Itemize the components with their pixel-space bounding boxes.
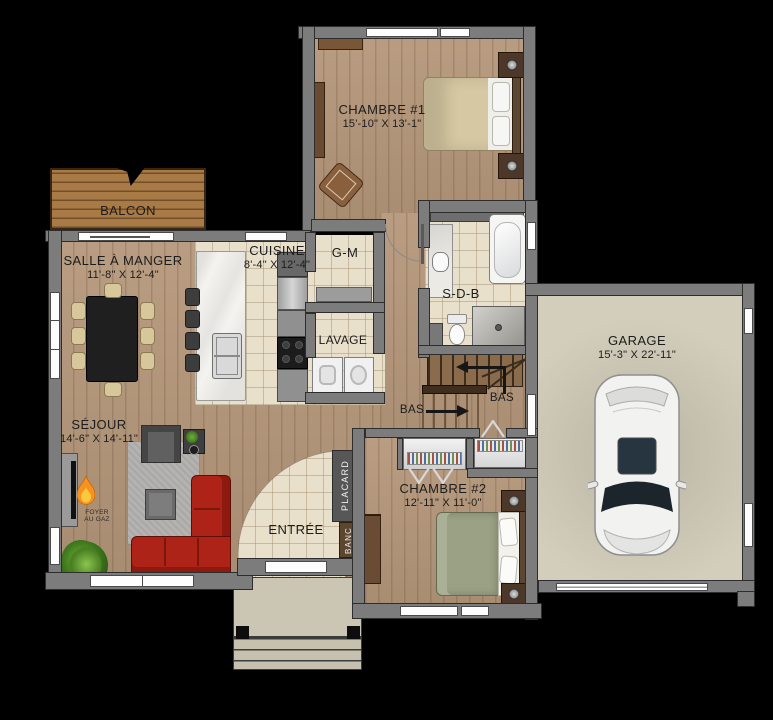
window: [142, 575, 194, 587]
stairs-arrow-1-vertical: [503, 366, 506, 394]
closet-door-swing-icon: [481, 420, 505, 437]
front-door: [265, 561, 327, 573]
bar-stool-icon: [185, 288, 200, 306]
wall-segment: [418, 200, 538, 213]
bed1-headboard: [512, 72, 521, 156]
wall-segment: [365, 428, 480, 438]
bed2-pillow: [499, 555, 518, 584]
bed1-pillow-bottom: [492, 116, 510, 146]
foyer-line2: AU GAZ: [84, 516, 109, 523]
room-name: LAVAGE: [319, 333, 368, 347]
room-dims: 14'-6" X 14'-11": [60, 433, 138, 446]
bath-cabinet: [429, 323, 443, 347]
porch-post-right: [347, 626, 360, 639]
stove-burner: [282, 341, 290, 349]
window: [50, 292, 60, 321]
media-console: [141, 425, 181, 463]
dining-chair-icon: [104, 283, 122, 298]
wall-segment: [311, 219, 386, 232]
stair-railing: [422, 385, 487, 394]
garage-house-door: [527, 394, 536, 436]
room-name: S-D-B: [442, 286, 479, 302]
sofa-cushion-line: [197, 538, 199, 566]
stairs-arrow-2-line: [426, 410, 458, 413]
stairs-arrow-1-horizontal: [467, 366, 506, 369]
room-dims: 15'-3" X 22'-11": [598, 349, 676, 362]
wall-segment: [523, 26, 536, 213]
room-label-salle-a-manger: SALLE À MANGER 11'-8" X 12'-4": [63, 253, 182, 282]
room-name: GARAGE: [598, 333, 676, 349]
window: [245, 232, 287, 241]
bed2-blanket: [436, 512, 502, 596]
bathtub-basin: [494, 222, 521, 278]
stove-burner: [282, 355, 290, 363]
small-plant-icon: [186, 431, 198, 443]
room-name: CUISINE: [244, 243, 310, 259]
front-steps: [233, 637, 362, 670]
room-label-lavage: LAVAGE: [319, 333, 368, 347]
window: [440, 28, 470, 37]
lamp-icon: [506, 161, 517, 172]
wall-segment: [373, 232, 385, 354]
dining-chair-icon: [71, 302, 86, 320]
stove-icon: [277, 337, 308, 369]
dining-chair-icon: [140, 327, 155, 345]
door-leaf: [421, 224, 424, 264]
room-label-garage: GARAGE 15'-3" X 22'-11": [598, 333, 676, 362]
window: [50, 349, 60, 379]
dryer-door: [350, 365, 367, 385]
bar-stool-icon: [185, 310, 200, 328]
wall-segment: [525, 283, 755, 296]
room-name: SALLE À MANGER: [63, 253, 182, 269]
kitchen-counter: [277, 369, 308, 402]
shower-drain: [495, 324, 502, 331]
wall-segment: [466, 438, 474, 470]
bed2-pillow: [499, 517, 519, 547]
kitchen-counter: [277, 310, 308, 337]
nightstand-icon: [498, 153, 525, 179]
foyer-label: FOYER AU GAZ: [84, 509, 109, 524]
room-label-sdb: S-D-B: [442, 286, 479, 302]
stairs-down-label-1: BAS: [490, 392, 514, 406]
coffee-table-icon: [145, 489, 176, 520]
dining-chair-icon: [140, 352, 155, 370]
room-name: SÉJOUR: [60, 417, 138, 433]
room-name: CHAMBRE #2: [399, 481, 486, 497]
window: [400, 606, 458, 616]
dining-table-icon: [86, 296, 138, 382]
balcon-deck: [50, 168, 206, 230]
foyer-line1: FOYER: [85, 509, 108, 516]
dining-chair-icon: [71, 327, 86, 345]
lamp-icon: [509, 496, 520, 507]
fridge-icon: [277, 277, 308, 310]
pantry-shelf: [316, 287, 372, 302]
room-name: G-M: [332, 245, 358, 261]
sofa-cushion-line: [194, 508, 220, 510]
window: [744, 308, 753, 334]
sofa-cushion-line: [164, 538, 166, 566]
room-dims: 12'-11" X 11'-0": [399, 497, 486, 510]
room-label-entree: ENTRÉE: [268, 522, 323, 538]
car-icon: [588, 372, 686, 558]
nightstand-icon: [501, 490, 527, 512]
closet-hall-hangers: [477, 440, 523, 452]
fireplace-flame-icon: [77, 476, 95, 505]
stairs-arrow-2-head: [457, 405, 469, 417]
dining-chair-icon: [104, 382, 122, 397]
washer-door: [319, 365, 336, 385]
garage-side-door: [744, 503, 753, 547]
stairs-down-label-2: BAS: [400, 404, 424, 418]
decor-bowl-icon: [189, 445, 199, 455]
lamp-icon: [509, 589, 520, 600]
stairs-arrow-1-head: [456, 361, 468, 373]
closet-chambre2-hangers: [407, 452, 462, 465]
room-label-gm: G-M: [332, 245, 358, 261]
room-label-chambre1: CHAMBRE #1 15'-10" X 13'-1": [338, 102, 425, 131]
stove-burner: [295, 341, 303, 349]
room-label-chambre2: CHAMBRE #2 12'-11" X 11'-0": [399, 481, 486, 510]
wall-segment: [737, 591, 755, 607]
window: [90, 575, 143, 587]
wall-segment: [305, 392, 385, 404]
bar-stool-icon: [185, 354, 200, 372]
sofa-seat: [131, 536, 231, 577]
room-dims: 15'-10" X 13'-1": [338, 118, 425, 131]
floor-plan: FOYER AU GAZ BAS BAS PLACARD BANC: [0, 0, 773, 720]
porch-post-left: [236, 626, 249, 639]
room-label-sejour: SÉJOUR 14'-6" X 14'-11": [60, 417, 138, 446]
wall-segment: [305, 313, 316, 358]
patio-door-slider-line: [90, 236, 150, 238]
room-name: BALCON: [100, 203, 156, 219]
bed1-pillow-top: [492, 82, 510, 112]
wall-segment: [352, 428, 365, 619]
room-label-balcon: BALCON: [100, 203, 156, 219]
wall-segment: [397, 438, 403, 470]
window: [50, 320, 60, 350]
window: [366, 28, 438, 37]
room-label-cuisine: CUISINE 8'-4" X 12'-4": [244, 243, 310, 272]
room-dims: 11'-8" X 12'-4": [63, 269, 182, 282]
toilet-bowl-icon: [449, 324, 465, 345]
nightstand-icon: [498, 52, 525, 78]
wall-segment: [305, 302, 385, 313]
window: [461, 606, 489, 616]
room-name: CHAMBRE #1: [338, 102, 425, 118]
bathroom-sink-icon: [432, 252, 449, 272]
room-dims: 8'-4" X 12'-4": [244, 259, 310, 272]
window: [527, 222, 536, 250]
dining-chair-icon: [71, 352, 86, 370]
window: [50, 527, 60, 565]
lamp-icon: [506, 60, 517, 71]
wall-segment: [467, 468, 538, 478]
nightstand-icon: [501, 583, 527, 605]
bar-stool-icon: [185, 332, 200, 350]
wall-segment: [418, 345, 538, 355]
stove-burner: [295, 355, 303, 363]
garage-door: [556, 583, 708, 591]
kitchen-sink-divider: [214, 355, 240, 357]
dining-chair-icon: [140, 302, 155, 320]
room-name: ENTRÉE: [268, 522, 323, 538]
tv-icon: [71, 461, 76, 519]
toilet-tank: [447, 314, 467, 324]
wall-segment: [302, 26, 315, 240]
